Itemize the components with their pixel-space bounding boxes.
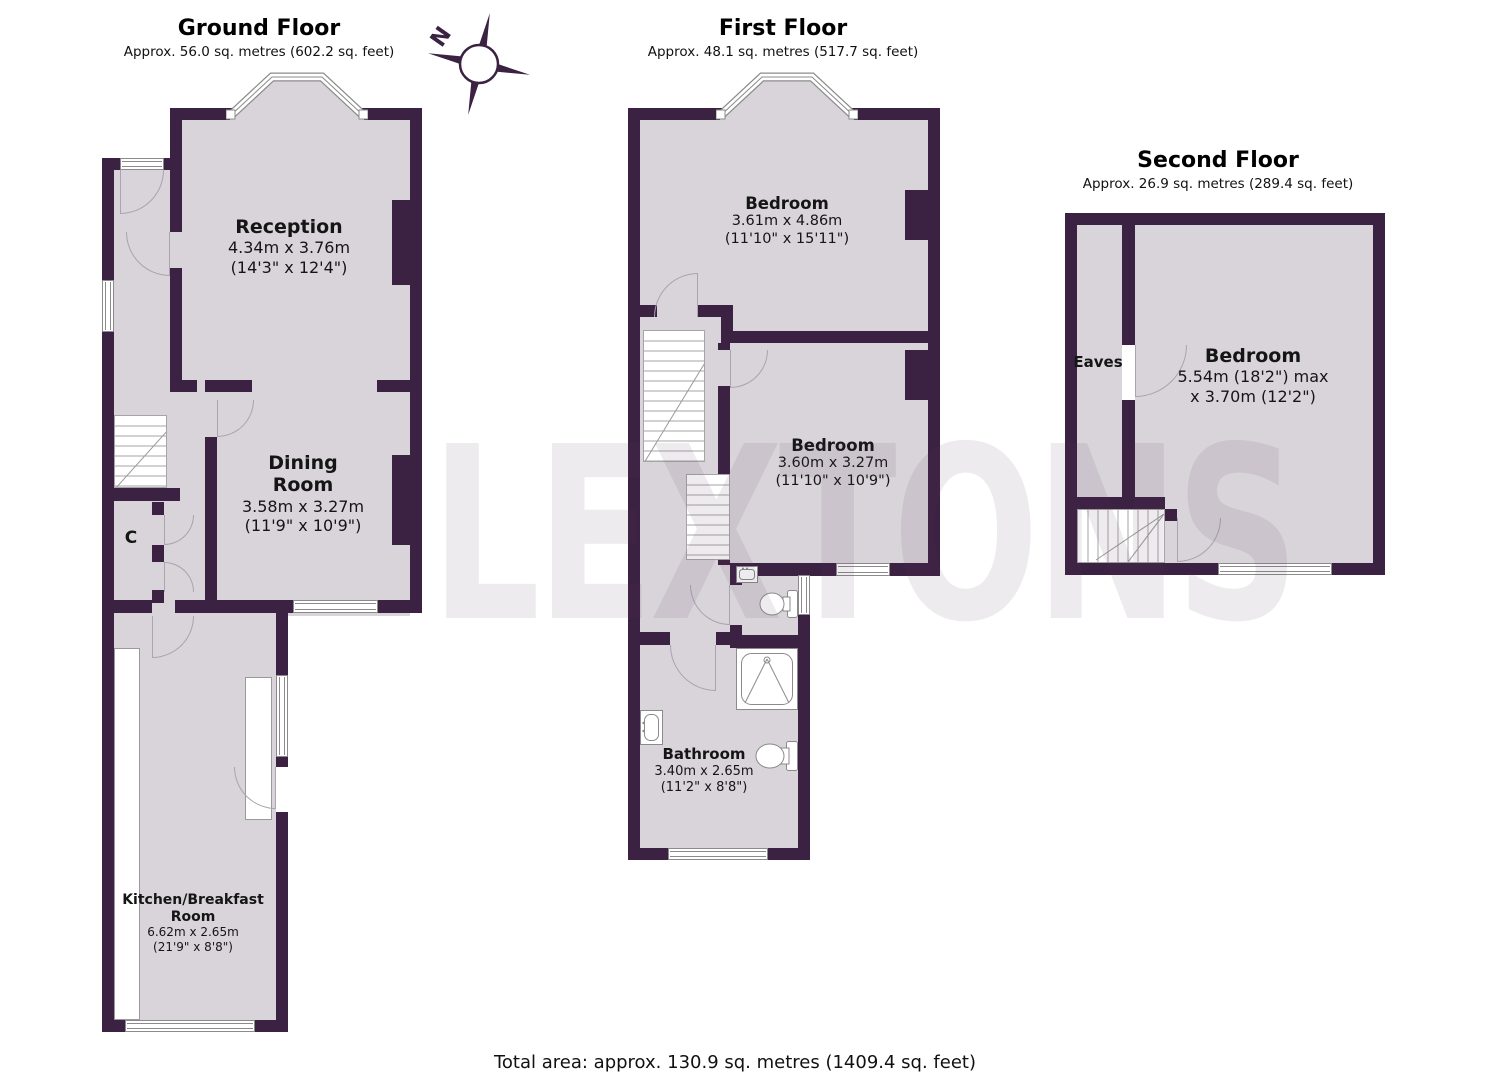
wall-segment [377,380,410,392]
watermark-text: LEXTONS [430,400,1049,670]
wall-segment [170,380,197,392]
wall-segment [846,108,940,120]
wall-segment [1332,563,1385,575]
floor-title-text: Ground Floor [109,16,409,41]
window [125,1020,255,1032]
wall-segment [628,848,668,860]
room-label-dining: Dining Room 3.58m x 3.27m (11'9" x 10'9"… [213,452,393,536]
wall-segment [170,120,182,232]
wall-segment [175,600,293,613]
room-label-kitchen: Kitchen/Breakfast Room 6.62m x 2.65m (21… [113,892,273,954]
wall-segment [102,1020,125,1032]
room-label-eaves: Eaves [1066,353,1130,371]
wall-segment [733,331,928,343]
wall-segment [255,1020,288,1032]
stairs-treads [115,416,167,488]
floor-title-text: First Floor [633,16,933,41]
window [668,848,768,860]
room-label-bedroom1: Bedroom 3.61m x 4.86m (11'10" x 15'11") [687,194,887,249]
ground-floor-plan: Reception 4.34m x 3.76m (14'3" x 12'4") … [100,70,425,1035]
floorplan-canvas: LEXTONS N Ground Floor Approx. 56.0 sq. … [0,0,1485,1080]
floor-area-text: Approx. 26.9 sq. metres (289.4 sq. feet) [1043,176,1393,192]
wall-segment [410,108,422,613]
wall-segment [276,812,288,1020]
wall-segment [276,757,288,767]
wall-segment [102,158,120,170]
wall-segment [392,200,410,285]
kitchen-counter [114,648,140,1020]
floor-area-text: Approx. 56.0 sq. metres (602.2 sq. feet) [109,44,409,60]
compass-icon: N [424,6,534,116]
wall-segment [152,590,164,603]
wall-segment [721,305,733,343]
wall-segment [628,108,728,120]
bay-window [226,72,368,120]
wall-segment [718,343,730,350]
wall-segment [698,305,721,317]
wall-segment [768,848,810,860]
floor-title-text: Second Floor [1043,148,1393,173]
floor-area-text: Approx. 48.1 sq. metres (517.7 sq. feet) [633,44,933,60]
wall-segment [102,600,152,613]
wall-segment [905,350,928,400]
window [276,675,288,757]
second-floor-title: Second Floor Approx. 26.9 sq. metres (28… [1043,148,1393,192]
room-label-reception: Reception 4.34m x 3.76m (14'3" x 12'4") [189,216,389,277]
wall-segment [205,380,252,392]
room-label-bathroom: Bathroom 3.40m x 2.65m (11'2" x 8'8") [643,746,765,795]
window [120,158,164,170]
bay-window [716,72,858,120]
stairs [114,415,167,488]
wall-segment [905,190,928,240]
window [102,280,114,332]
room-label-closet: C [108,528,154,548]
wall-segment [102,488,180,501]
wall-segment [1122,225,1135,345]
compass-north-label: N [426,22,457,51]
window [293,600,378,613]
wall-segment [392,455,410,545]
first-floor-title: First Floor Approx. 48.1 sq. metres (517… [633,16,933,60]
total-area-text: Total area: approx. 130.9 sq. metres (14… [300,1052,1170,1073]
wall-segment [170,268,182,380]
wall-segment [276,613,288,675]
bathroom-basin-icon [640,710,663,745]
wall-segment [152,502,164,515]
ground-floor-title: Ground Floor Approx. 56.0 sq. metres (60… [109,16,409,60]
wall-segment [378,600,422,613]
wall-segment [1373,213,1385,575]
wall-segment [1065,213,1385,225]
